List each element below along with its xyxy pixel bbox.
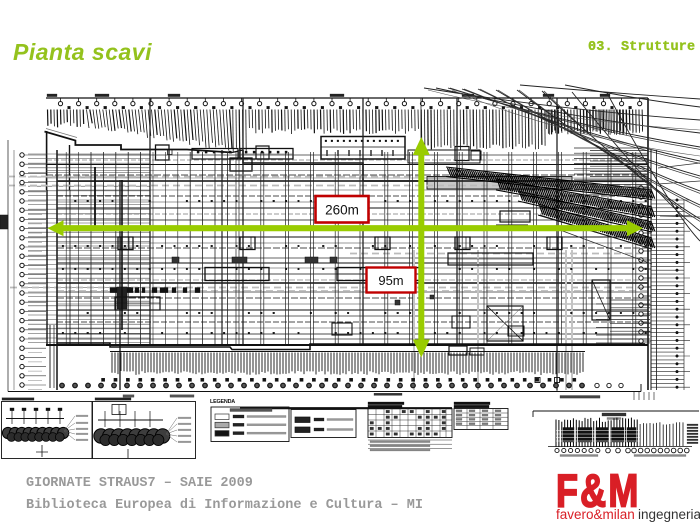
svg-text:Pianta scavi: Pianta scavi: [13, 39, 152, 65]
svg-text:ingegneria: ingegneria: [638, 507, 700, 522]
svg-text:03. Strutture: 03. Strutture: [588, 40, 695, 55]
svg-text:GIORNATE STRAUS7 – SAIE 2009: GIORNATE STRAUS7 – SAIE 2009: [26, 476, 253, 491]
svg-text:260m: 260m: [325, 203, 359, 218]
svg-text:95m: 95m: [378, 273, 403, 288]
svg-text:LEGENDA: LEGENDA: [210, 399, 235, 405]
svg-text:favero&milan: favero&milan: [556, 507, 635, 522]
svg-text:Biblioteca Europea di Informaz: Biblioteca Europea di Informazione e Cul…: [26, 498, 423, 513]
